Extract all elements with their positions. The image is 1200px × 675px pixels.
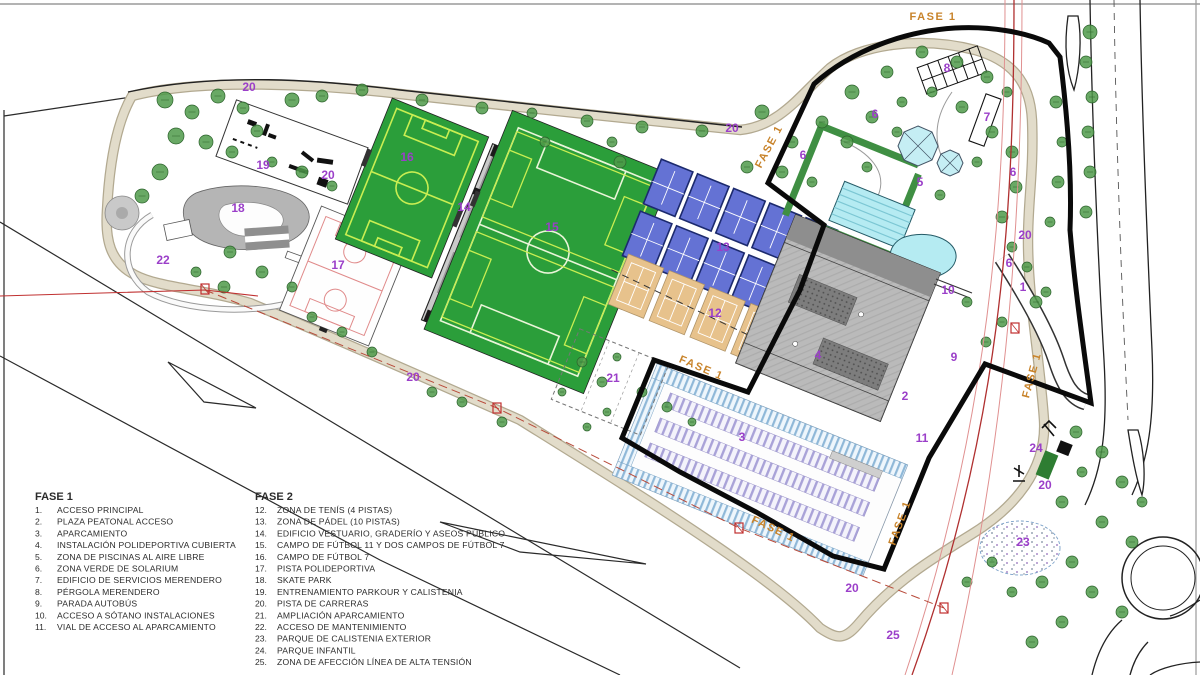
legend-item-number: 9. [35, 599, 42, 609]
zone-number: 5 [917, 175, 924, 189]
zone-number: 6 [872, 107, 879, 121]
zone-number: 15 [545, 220, 559, 234]
zone-number: 11 [916, 431, 929, 445]
zone-number: 16 [400, 150, 414, 164]
legend-item-label: ENTRENAMIENTO PARKOUR Y CALISTENIA [277, 587, 463, 597]
legend-item-label: ACCESO DE MANTENIMIENTO [277, 622, 407, 632]
legend-item-number: 1. [35, 505, 42, 515]
legend-item-label: ACCESO PRINCIPAL [57, 505, 144, 515]
legend-item-label: ZONA DE PISCINAS AL AIRE LIBRE [57, 552, 205, 562]
zone-number: 1 [1020, 280, 1027, 294]
legend-item-label: CAMPO DE FÚTBOL 11 Y DOS CAMPOS DE FÚTBO… [277, 540, 505, 550]
zone-number: 17 [331, 258, 345, 272]
phase1-label: FASE 1 [910, 11, 957, 23]
legend-item-number: 12. [255, 505, 267, 515]
zone-number: 19 [256, 158, 270, 172]
legend-item-label: VIAL DE ACCESO AL APARCAMIENTO [57, 622, 216, 632]
legend-item-number: 10. [35, 610, 47, 620]
legend-item-label: ZONA DE AFECCIÓN LÍNEA DE ALTA TENSIÓN [277, 657, 472, 667]
zone-number: 25 [886, 628, 900, 642]
zone-number: 20 [725, 121, 739, 135]
legend-item-number: 4. [35, 540, 42, 550]
zone-number: 6 [1010, 165, 1017, 179]
legend-item-number: 21. [255, 610, 267, 620]
legend-item-label: CAMPO DE FÚTBOL 7 [277, 552, 369, 562]
legend-item-label: PARQUE INFANTIL [277, 645, 356, 655]
zone-number: 14 [457, 200, 471, 214]
legend-item-label: ACCESO A SÓTANO INSTALACIONES [57, 610, 215, 620]
roads-east [1066, 0, 1200, 675]
legend-item-number: 18. [255, 575, 267, 585]
legend-item-number: 25. [255, 657, 267, 667]
legend-item-label: PARQUE DE CALISTENIA EXTERIOR [277, 634, 431, 644]
zone-number: 18 [231, 201, 245, 215]
zone-number: 23 [1016, 535, 1030, 549]
zone-number: 7 [984, 110, 991, 124]
legend-item-label: ZONA VERDE DE SOLARIUM [57, 564, 178, 574]
legend: FASE 11.ACCESO PRINCIPAL2.PLAZA PEATONAL… [35, 491, 505, 667]
legend-item-label: PARADA AUTOBÚS [57, 599, 137, 609]
zone-number: 22 [156, 253, 170, 267]
legend-item-number: 16. [255, 552, 267, 562]
legend-item-number: 3. [35, 528, 42, 538]
legend-item-number: 17. [255, 564, 267, 574]
zone-number: 20 [406, 370, 420, 384]
legend-item-label: ZONA DE TENÍS (4 PISTAS) [277, 505, 392, 515]
legend-item-number: 5. [35, 552, 42, 562]
zone-number: 4 [815, 348, 822, 362]
zone-number: 20 [242, 80, 256, 94]
zone-number: 9 [951, 350, 958, 364]
legend-item-number: 15. [255, 540, 267, 550]
legend-item-label: PISTA POLIDEPORTIVA [277, 564, 375, 574]
site-plan-canvas: FASE 1FASE 1FASE 1FASE 1FASE 1FASE 1 123… [0, 0, 1200, 675]
legend-item-number: 2. [35, 517, 42, 527]
legend-item-label: EDIFICIO VESTUARIO, GRADERÍO Y ASEOS PÚB… [277, 528, 505, 538]
legend-item-number: 6. [35, 564, 42, 574]
legend-item-number: 14. [255, 528, 267, 538]
legend-item-number: 13. [255, 517, 267, 527]
legend-header-fase1: FASE 1 [35, 491, 73, 503]
legend-item-number: 11. [35, 622, 46, 632]
legend-item-label: EDIFICIO DE SERVICIOS MERENDERO [57, 575, 222, 585]
legend-item-label: ZONA DE PÁDEL (10 PISTAS) [277, 517, 400, 527]
site-plan-svg: FASE 1FASE 1FASE 1FASE 1FASE 1FASE 1 123… [0, 0, 1200, 675]
zone-number: 20 [845, 581, 859, 595]
legend-item-number: 23. [255, 634, 267, 644]
zone-number: 13 [716, 240, 730, 254]
zone-number: 6 [800, 148, 807, 162]
legend-item-number: 19. [255, 587, 267, 597]
zone-number: 3 [739, 430, 746, 444]
legend-item-number: 7. [35, 575, 42, 585]
zone-number: 20 [321, 168, 335, 182]
zone-number: 12 [708, 306, 722, 320]
zone-number: 20 [1018, 228, 1032, 242]
legend-item-label: PLAZA PEATONAL ACCESO [57, 517, 173, 527]
legend-item-label: INSTALACIÓN POLIDEPORTIVA CUBIERTA [57, 540, 236, 550]
zone-number: 10 [941, 283, 955, 297]
zone-number: 20 [1038, 478, 1052, 492]
zone-number: 21 [606, 371, 620, 385]
legend-header-fase2: FASE 2 [255, 491, 293, 503]
legend-item-label: SKATE PARK [277, 575, 332, 585]
legend-item-label: PISTA DE CARRERAS [277, 599, 369, 609]
zone-number: 2 [902, 389, 909, 403]
legend-item-number: 22. [255, 622, 267, 632]
zone-number: 8 [944, 61, 951, 75]
legend-item-number: 24. [255, 645, 267, 655]
zone-number: 6 [1006, 256, 1013, 270]
legend-item-label: PÉRGOLA MERENDERO [57, 587, 160, 597]
legend-item-label: APARCAMIENTO [57, 528, 127, 538]
legend-item-label: AMPLIACIÓN APARCAMIENTO [277, 610, 405, 620]
legend-item-number: 8. [35, 587, 42, 597]
zone-number: 24 [1029, 441, 1043, 455]
legend-item-number: 20. [255, 599, 267, 609]
